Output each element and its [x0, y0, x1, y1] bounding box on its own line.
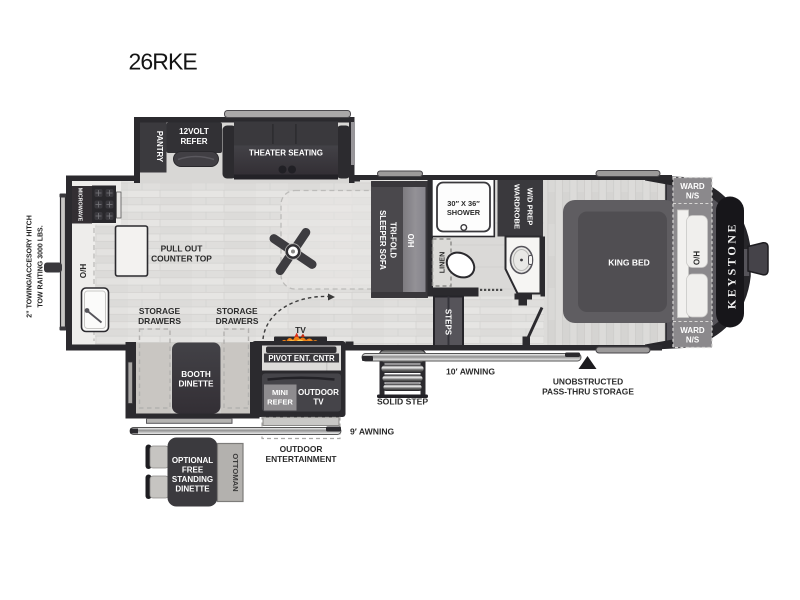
- svg-text:WARD: WARD: [680, 182, 705, 191]
- svg-text:STANDING: STANDING: [172, 475, 213, 484]
- svg-text:STORAGE: STORAGE: [139, 306, 181, 316]
- svg-text:UNOBSTRUCTED: UNOBSTRUCTED: [553, 377, 623, 387]
- svg-text:9′ AWNING: 9′ AWNING: [350, 427, 395, 437]
- svg-text:TV: TV: [313, 398, 324, 407]
- svg-text:26RKE: 26RKE: [129, 49, 198, 75]
- svg-text:N/S: N/S: [686, 192, 700, 201]
- svg-text:WARD: WARD: [680, 326, 705, 335]
- svg-text:W/D PREP: W/D PREP: [526, 188, 535, 226]
- svg-text:12VOLT: 12VOLT: [179, 127, 209, 136]
- svg-text:THEATER SEATING: THEATER SEATING: [249, 149, 323, 158]
- svg-text:LINEN: LINEN: [438, 252, 447, 274]
- svg-text:OTTOMAN: OTTOMAN: [231, 453, 240, 491]
- svg-text:30″ X 36″: 30″ X 36″: [447, 199, 480, 208]
- svg-text:KEYSTONE: KEYSTONE: [725, 222, 739, 309]
- svg-text:REFER: REFER: [180, 137, 207, 146]
- svg-text:COUNTER TOP: COUNTER TOP: [151, 254, 212, 264]
- svg-text:OUTDOOR: OUTDOOR: [298, 388, 339, 397]
- svg-text:STEPS: STEPS: [444, 309, 453, 336]
- svg-text:PANTRY: PANTRY: [155, 131, 164, 163]
- svg-text:SLEEPER SOFA: SLEEPER SOFA: [378, 210, 387, 270]
- svg-text:WARDROBE: WARDROBE: [513, 184, 522, 229]
- svg-text:PASS-THRU STORAGE: PASS-THRU STORAGE: [542, 387, 634, 397]
- svg-text:MINI: MINI: [272, 388, 288, 397]
- svg-text:DINETTE: DINETTE: [178, 380, 214, 389]
- svg-text:O/H: O/H: [79, 264, 88, 279]
- svg-text:DRAWERS: DRAWERS: [216, 316, 259, 326]
- svg-text:H/O: H/O: [692, 251, 701, 265]
- svg-text:DRAWERS: DRAWERS: [138, 316, 181, 326]
- svg-text:KING BED: KING BED: [608, 258, 650, 268]
- svg-text:PULL OUT: PULL OUT: [161, 244, 204, 254]
- svg-text:2” TOWING/ACCESORY HITCH: 2” TOWING/ACCESORY HITCH: [27, 215, 34, 318]
- svg-text:10′ AWNING: 10′ AWNING: [446, 367, 495, 377]
- svg-text:OUTDOOR: OUTDOOR: [280, 444, 323, 454]
- svg-text:ENTERTAINMENT: ENTERTAINMENT: [265, 454, 337, 464]
- svg-text:SHOWER: SHOWER: [447, 208, 481, 217]
- svg-text:TOW RAITING 3000 LBS.: TOW RAITING 3000 LBS.: [38, 225, 45, 307]
- svg-text:DINETTE: DINETTE: [175, 485, 210, 494]
- svg-text:OPTIONAL: OPTIONAL: [172, 456, 213, 465]
- svg-text:SOLID STEP: SOLID STEP: [377, 397, 428, 407]
- svg-text:REFER: REFER: [267, 398, 293, 407]
- svg-text:O/H: O/H: [406, 234, 415, 248]
- svg-text:FREE: FREE: [182, 466, 204, 475]
- svg-text:N/S: N/S: [686, 336, 700, 345]
- svg-text:MICROWAVE: MICROWAVE: [77, 188, 83, 222]
- svg-text:TRI-FOLD: TRI-FOLD: [389, 222, 398, 259]
- svg-text:STORAGE: STORAGE: [216, 306, 258, 316]
- svg-text:BOOTH: BOOTH: [181, 370, 211, 379]
- svg-text:PIVOT ENT. CNTR: PIVOT ENT. CNTR: [268, 354, 335, 363]
